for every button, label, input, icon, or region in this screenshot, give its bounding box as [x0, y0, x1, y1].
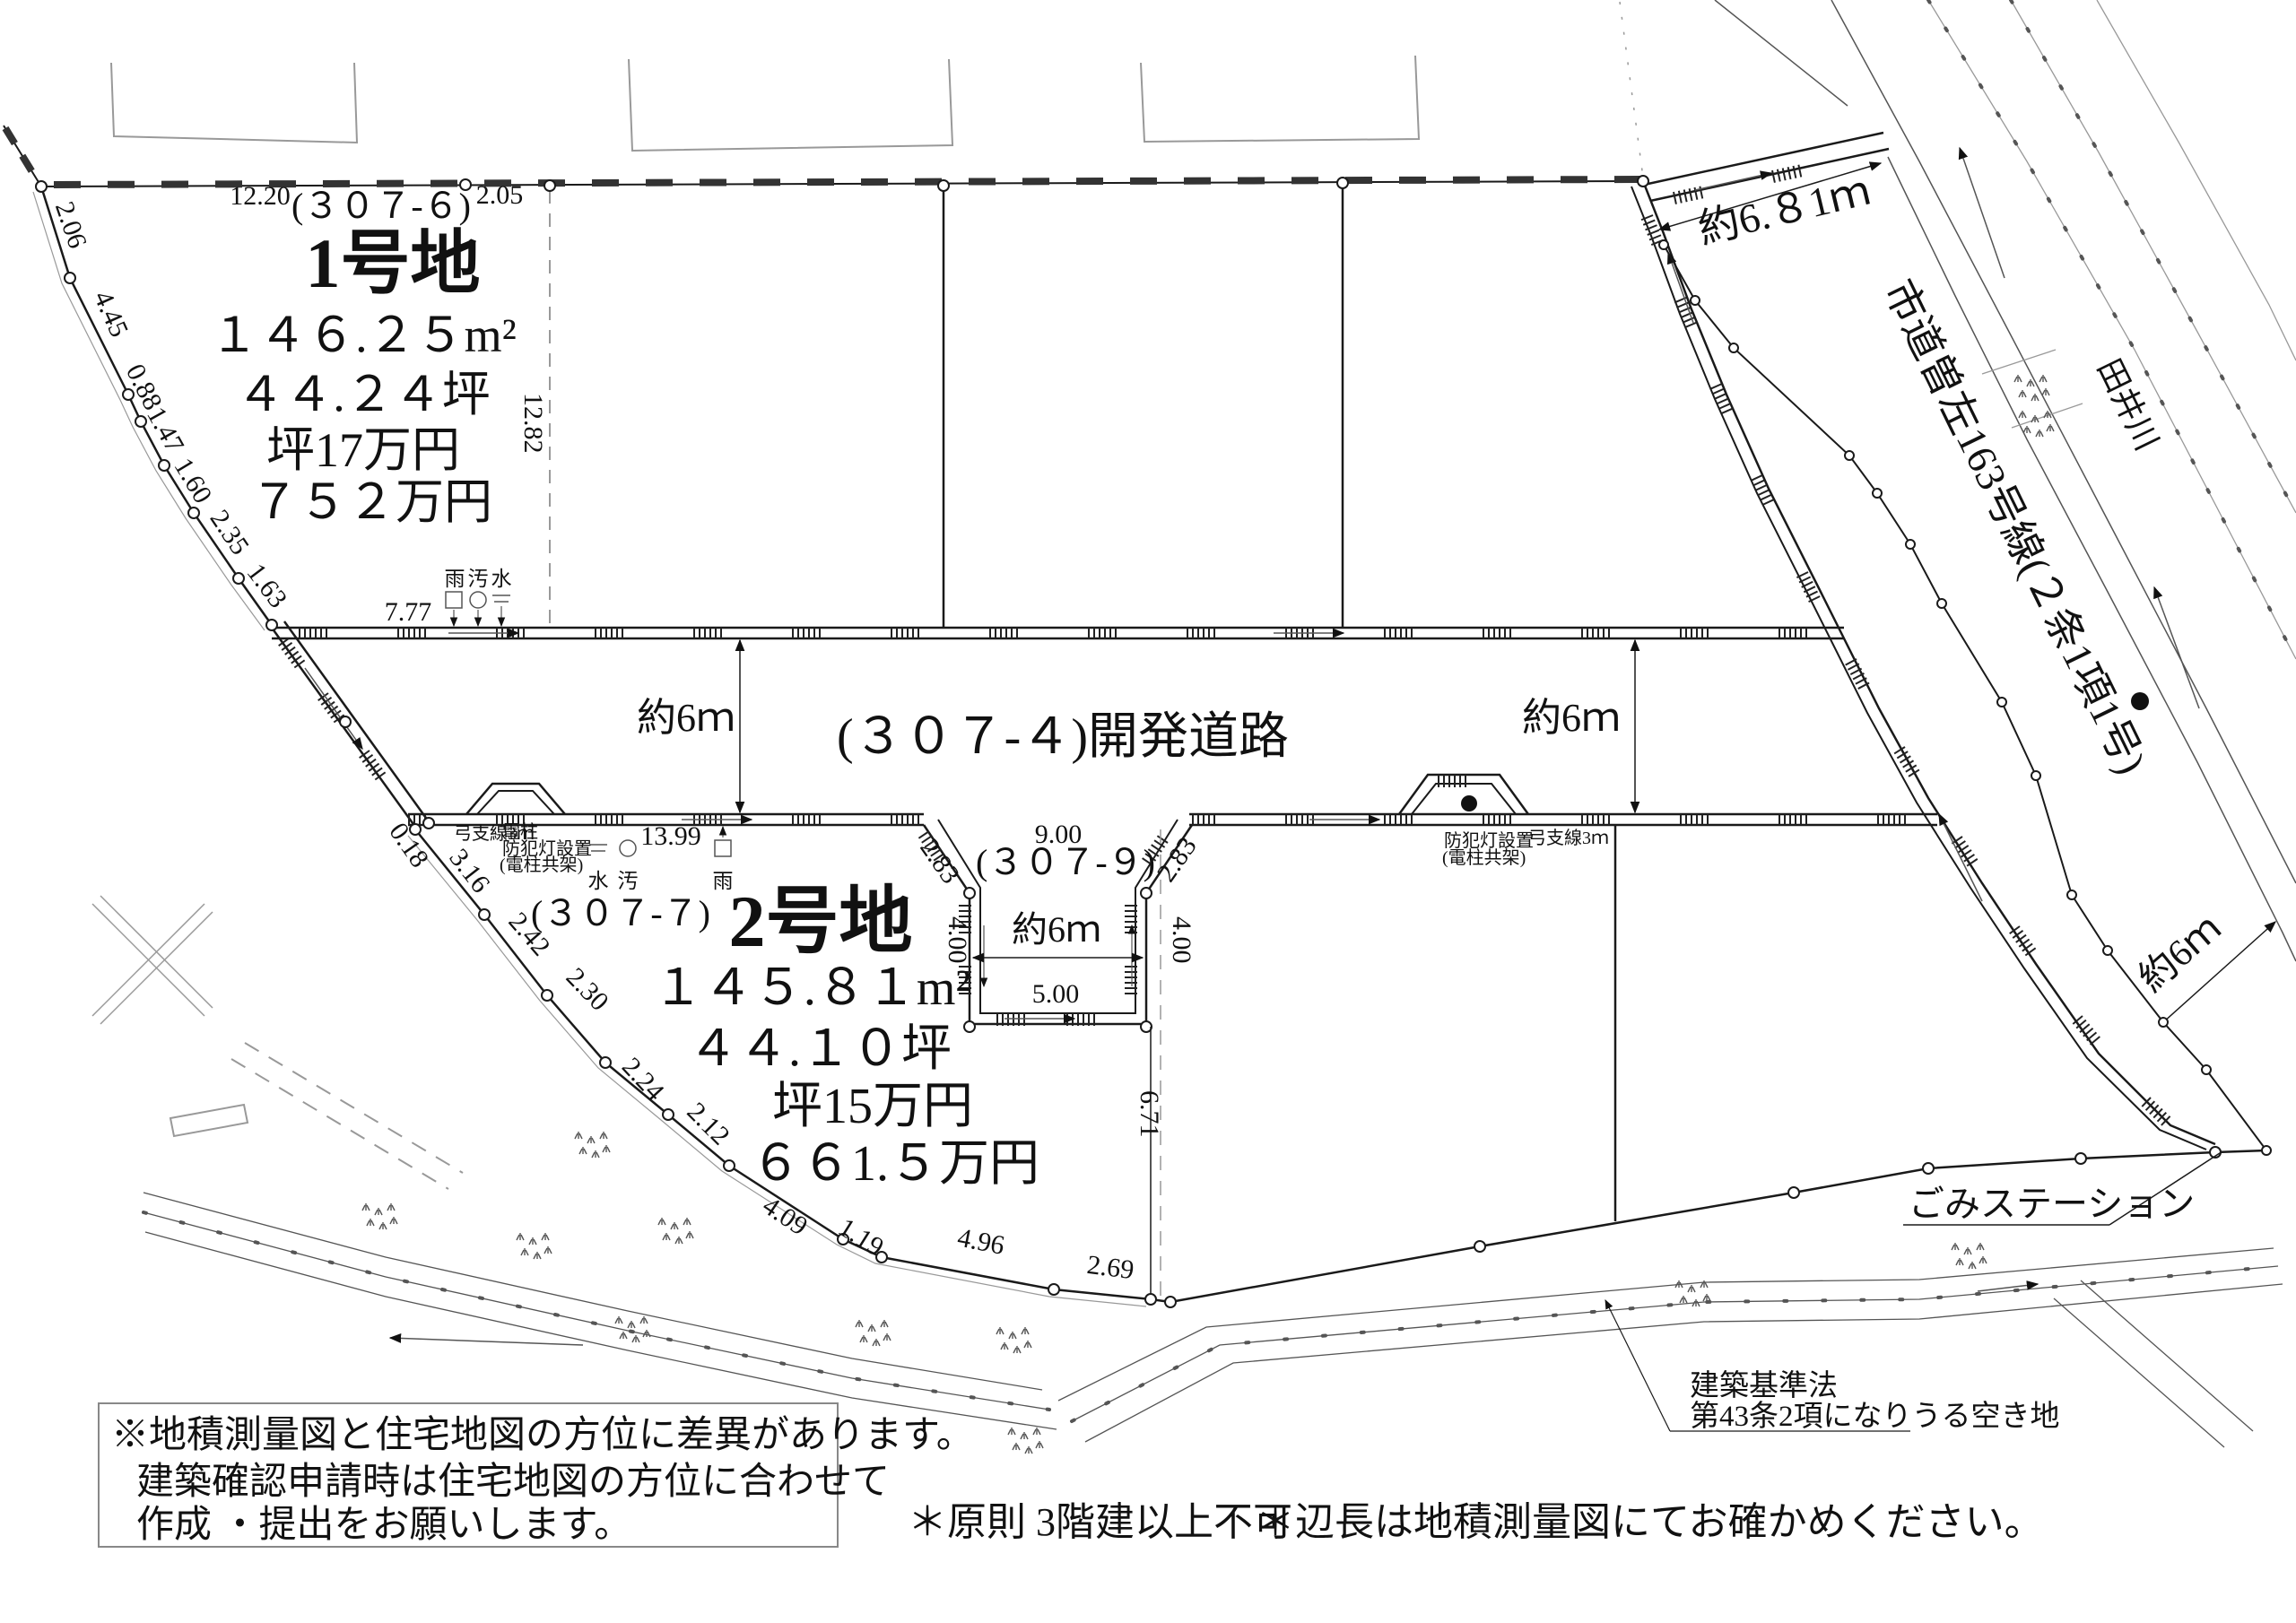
label-stay-right: 弓支線3ｍ [1528, 828, 1609, 848]
label-shared-right: (電柱共架) [1442, 847, 1526, 868]
dim-w2: 4.45 [88, 286, 135, 341]
dim-frontage1: 7.77 [385, 597, 432, 627]
plot2-name: 2号地 [728, 881, 912, 962]
note-line1: ※地積測量図と住宅地図の方位に差異があります。 [111, 1414, 974, 1456]
plot2-unit-price: 坪15万円 [772, 1079, 973, 1134]
callout-labels: ごみステーション 建築基準法 第43条2項になりうる空き地 [1690, 1184, 2195, 1433]
plot1-unit-price: 坪17万円 [266, 423, 460, 477]
plot1-parcel-number: (３０７-６) [291, 186, 471, 226]
dim-pocket-left: 4.00 [943, 916, 972, 964]
neighbour-buildings [111, 56, 1419, 151]
label-water-2: 水 [588, 870, 609, 892]
dim-s4: 2.69 [1085, 1250, 1135, 1285]
plot1-area-tsubo: ４４.２４坪 [236, 368, 491, 421]
city-road-name: 市道曽左163号線(２条1項1号) [1875, 273, 2154, 781]
pocket-width: 約6ｍ [1012, 909, 1101, 950]
dim-pocket-diag-right: 2.83 [1152, 832, 1203, 888]
utility-pole-dot [1461, 795, 1477, 811]
label-shared-left: (電柱共架) [500, 855, 583, 875]
plot2-area-tsubo: ４４.１０坪 [688, 1021, 952, 1077]
dim-s3: 4.96 [955, 1222, 1007, 1260]
label-water-1: 水 [491, 568, 512, 590]
road-width-right: 約6ｍ [1522, 696, 1621, 740]
dim-pocket-bottom: 5.00 [1032, 979, 1080, 1009]
bottom-note-1: ＊原則 3階建以上不可 [908, 1500, 1292, 1544]
dev-road-label: (３０７-４)開発道路 [837, 709, 1289, 765]
garbage-station-label: ごみステーション [1909, 1184, 2195, 1224]
site-plan-drawing: (３０７-６) 1号地 １４６.２５m² ４４.２４坪 坪17万円 ７５２万円 … [0, 0, 2296, 1623]
plot2-area-m2: １４５.８１m² [653, 960, 970, 1016]
access-width: 約6.８1ｍ [1693, 167, 1874, 252]
dim-plot1-east: 12.82 [518, 393, 548, 454]
plot1-price: ７５２万円 [250, 475, 492, 529]
dim-sw2: 3.16 [443, 843, 495, 898]
dim-sw4: 2.30 [561, 962, 614, 1017]
dim-sw5: 2.24 [616, 1052, 670, 1107]
plot2-price: ６６1.５万円 [751, 1136, 1039, 1192]
dim-w1: 2.06 [49, 198, 92, 252]
dim-s1: 4.09 [757, 1191, 813, 1242]
dim-w6: 2.35 [204, 505, 256, 560]
dim-pocket-right: 4.00 [1167, 916, 1196, 964]
east-boundary-strip [1631, 181, 2266, 1150]
label-rain-1: 雨 [445, 568, 465, 590]
cadastral-site-plan-sheet: (３０７-６) 1号地 １４６.２５m² ４４.２４坪 坪17万円 ７５２万円 … [0, 0, 2296, 1623]
north-boundary [4, 2, 1643, 187]
pole-dot-city-road [2131, 692, 2149, 710]
label-rain-2: 雨 [713, 870, 734, 892]
dim-w7: 1.63 [241, 558, 293, 613]
dim-top-b: 2.05 [476, 180, 524, 210]
utilities-plot1 [446, 592, 510, 626]
label-sewer-1: 汚 [468, 568, 489, 590]
south-road-width: 約6ｍ [2131, 907, 2229, 1001]
dim-pocket-top: 9.00 [1035, 820, 1083, 849]
dim-top-a: 12.20 [230, 181, 291, 211]
road-width-left: 約6ｍ [637, 696, 735, 740]
note-line3: 作成 ・提出をお願いします。 [136, 1505, 631, 1546]
plot1-area-m2: １４６.２５m² [210, 308, 517, 362]
river-name: 田井川 [2091, 353, 2165, 456]
cross-mark [92, 896, 213, 1024]
west-landmarks [92, 896, 463, 1189]
plot1-name: 1号地 [305, 224, 480, 302]
building-law-line1: 建築基準法 [1690, 1369, 1838, 1402]
plot1-labels: (３０７-６) 1号地 １４６.２５m² ４４.２４坪 坪17万円 ７５２万円 [210, 186, 517, 529]
label-sewer-2: 汚 [618, 870, 639, 892]
plot2-parcel-number: (３０７-７) [531, 893, 710, 933]
dim-sw6: 2.12 [681, 1097, 735, 1150]
dim-w5: 1.60 [168, 453, 217, 508]
bottom-note-2: ＊辺長は地積測量図にてお確かめください。 [1256, 1500, 2044, 1544]
dim-frontage2: 13.99 [640, 821, 701, 851]
dim-pocket-depth: 6.71 [1135, 1090, 1164, 1138]
note-line2: 建築確認申請時は住宅地図の方位に合わせて [136, 1461, 890, 1503]
building-law-line2: 第43条2項になりうる空き地 [1690, 1400, 2060, 1433]
